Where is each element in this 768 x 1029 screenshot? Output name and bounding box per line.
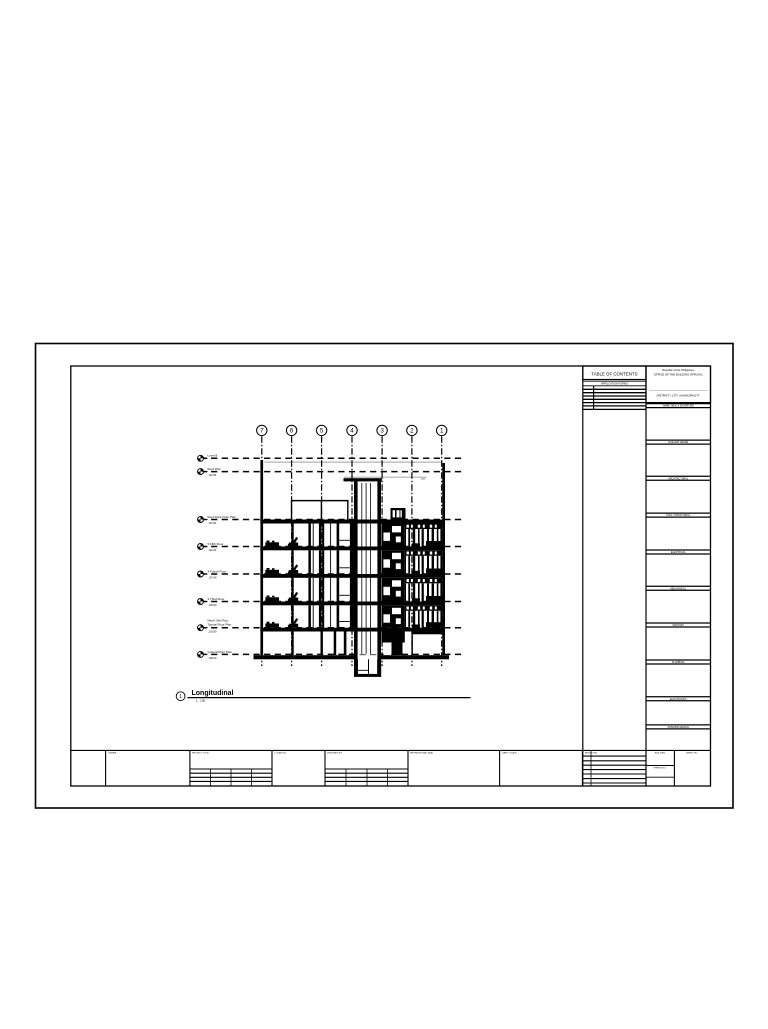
svg-text:4 Fourth Floor: 4 Fourth Floor xyxy=(208,569,227,573)
svg-text:DATE / SCALE: DATE / SCALE xyxy=(502,752,517,755)
svg-text:3: 3 xyxy=(380,428,384,435)
svg-text:3 Third Floor: 3 Third Floor xyxy=(208,597,225,601)
svg-text:7: 7 xyxy=(260,428,264,435)
svg-text:PROFESSIONAL SEAL: PROFESSIONAL SEAL xyxy=(410,752,434,755)
svg-text:104.60: 104.60 xyxy=(209,603,217,607)
svg-text:116.50: 116.50 xyxy=(209,473,217,477)
svg-text:LOCATION: LOCATION xyxy=(275,752,286,755)
svg-text:APPLICATION FORMS: APPLICATION FORMS xyxy=(601,382,628,386)
svg-text:DESIGNED BY: DESIGNED BY xyxy=(327,753,342,755)
svg-text:5: 5 xyxy=(320,428,324,435)
svg-text:DISTRICT / CITY / MUNICIPALITY: DISTRICT / CITY / MUNICIPALITY xyxy=(657,394,700,398)
svg-text:Level 8: Level 8 xyxy=(208,454,218,458)
svg-text:OWNER: OWNER xyxy=(108,753,117,755)
svg-text:Longitudinal: Longitudinal xyxy=(192,690,234,697)
svg-text:110.20: 110.20 xyxy=(209,548,217,552)
svg-text:100.00: 100.00 xyxy=(209,656,217,660)
svg-text:1: 1 xyxy=(179,694,182,700)
svg-text:SHEET NO.: SHEET NO. xyxy=(686,752,698,754)
svg-text:TABLE OF CONTENTS: TABLE OF CONTENTS xyxy=(591,371,637,376)
svg-text:101.80: 101.80 xyxy=(209,629,217,633)
svg-text:107.40: 107.40 xyxy=(209,576,217,580)
svg-text:1: 1 xyxy=(440,428,444,435)
svg-text:Roof Deck Floor Plan: Roof Deck Floor Plan xyxy=(208,515,237,519)
svg-text:Roof Plan: Roof Plan xyxy=(208,467,222,471)
svg-text:OFFICE OF THE BUILDING OFFICIA: OFFICE OF THE BUILDING OFFICIAL xyxy=(654,372,703,376)
svg-text:2: 2 xyxy=(410,428,414,435)
svg-text:113.00: 113.00 xyxy=(209,521,217,525)
svg-text:1 : 100: 1 : 100 xyxy=(196,699,206,703)
svg-text:PROJECT TITLE: PROJECT TITLE xyxy=(192,753,209,755)
svg-text:Typical Floor Plan: Typical Floor Plan xyxy=(208,623,232,627)
svg-text:BUILDING: BUILDING xyxy=(655,752,666,754)
svg-text:PERMIT NO.: PERMIT NO. xyxy=(654,768,667,770)
svg-text:5 Fifth Floor: 5 Fifth Floor xyxy=(208,542,224,546)
svg-text:6: 6 xyxy=(290,428,294,435)
svg-text:4: 4 xyxy=(350,428,354,435)
svg-text:Ground Floor Plan: Ground Floor Plan xyxy=(208,650,233,654)
